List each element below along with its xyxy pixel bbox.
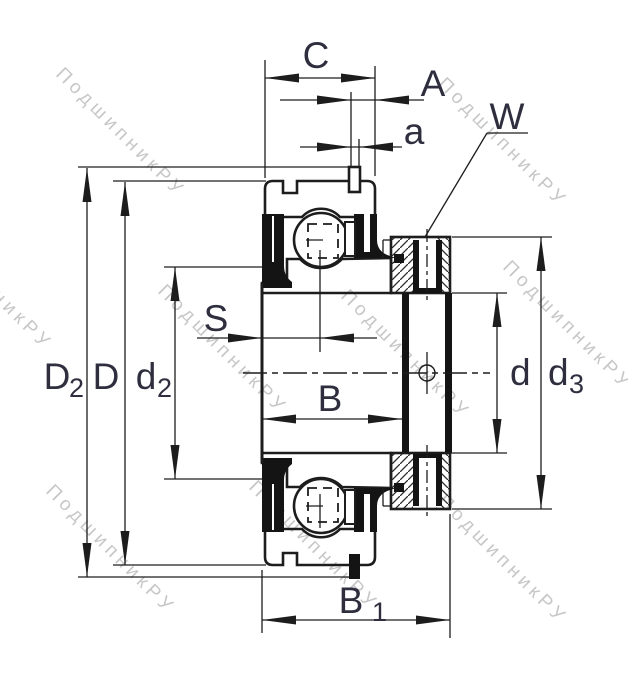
dimension-label: a [404,111,425,152]
bearing-drawing-page: ПодшипникРУ ПодшипникРУ ПодшипникРУ Подш… [0,0,628,676]
arrowhead [416,616,450,625]
watermark-text: ПодшипникРУ [0,217,57,355]
arrowhead [320,334,354,343]
arrowhead [537,237,546,271]
arrowhead [83,168,92,202]
dimension-label: S [204,298,229,339]
dimension-d: d [493,293,531,453]
arrowhead [493,293,502,327]
cage-pocket-bottom [345,490,355,524]
dimension-label: B [318,378,343,419]
arrowhead [171,445,180,479]
eccentric-recess-bottom [394,483,404,492]
dimension-label: D [44,356,71,397]
dimension-label: A [421,63,446,104]
watermark-text: ПодшипникРУ [433,491,571,629]
seal-gap [364,214,370,252]
locating-pin-top [349,167,360,192]
dimension-label-subscript: 1 [372,597,387,627]
arrowhead [83,543,92,577]
watermark-text: ПодшипникРУ [41,481,179,619]
arrowhead [262,616,296,625]
arrowhead [317,143,351,152]
arrowhead [265,74,299,83]
eccentric-recess-top [394,254,404,263]
arrowhead [375,96,409,105]
arrowhead [493,419,502,453]
seal-gap [364,494,370,532]
dimension-label: d [548,352,569,393]
watermark-text: ПодшипникРУ [433,74,571,212]
arrowhead [341,74,375,83]
dimension-C: C [265,35,375,83]
dimension-label: d [510,352,531,393]
ball-cage-bottom [308,488,338,522]
arrowhead [317,96,351,105]
cage-pocket-top [345,222,355,256]
dimension-label: W [490,96,525,137]
locating-pin-bottom [349,554,360,579]
dimension-a: a [300,111,425,152]
dimension-label: C [303,35,330,76]
dimension-label-subscript: 2 [69,373,84,403]
watermarks: ПодшипникРУ ПодшипникРУ ПодшипникРУ Подш… [0,64,628,629]
bearing-cross-section-drawing: ПодшипникРУ ПодшипникРУ ПодшипникРУ Подш… [0,0,628,676]
arrowhead [537,475,546,509]
dimension-label-subscript: 3 [569,369,584,399]
arrowhead [228,334,262,343]
dimension-D: D [93,182,130,565]
leader-line [425,133,487,237]
dimension-label: B [339,580,364,621]
dimension-label-subscript: 2 [157,373,172,403]
dimension-label: d [136,356,157,397]
dimension-d3: d 3 [537,237,585,509]
arrowhead [121,182,130,216]
dimension-label: D [93,356,120,397]
dimension-B1: B 1 [262,580,450,627]
arrowhead [368,415,402,424]
ball-cage-top [308,224,338,258]
arrowhead [359,143,393,152]
